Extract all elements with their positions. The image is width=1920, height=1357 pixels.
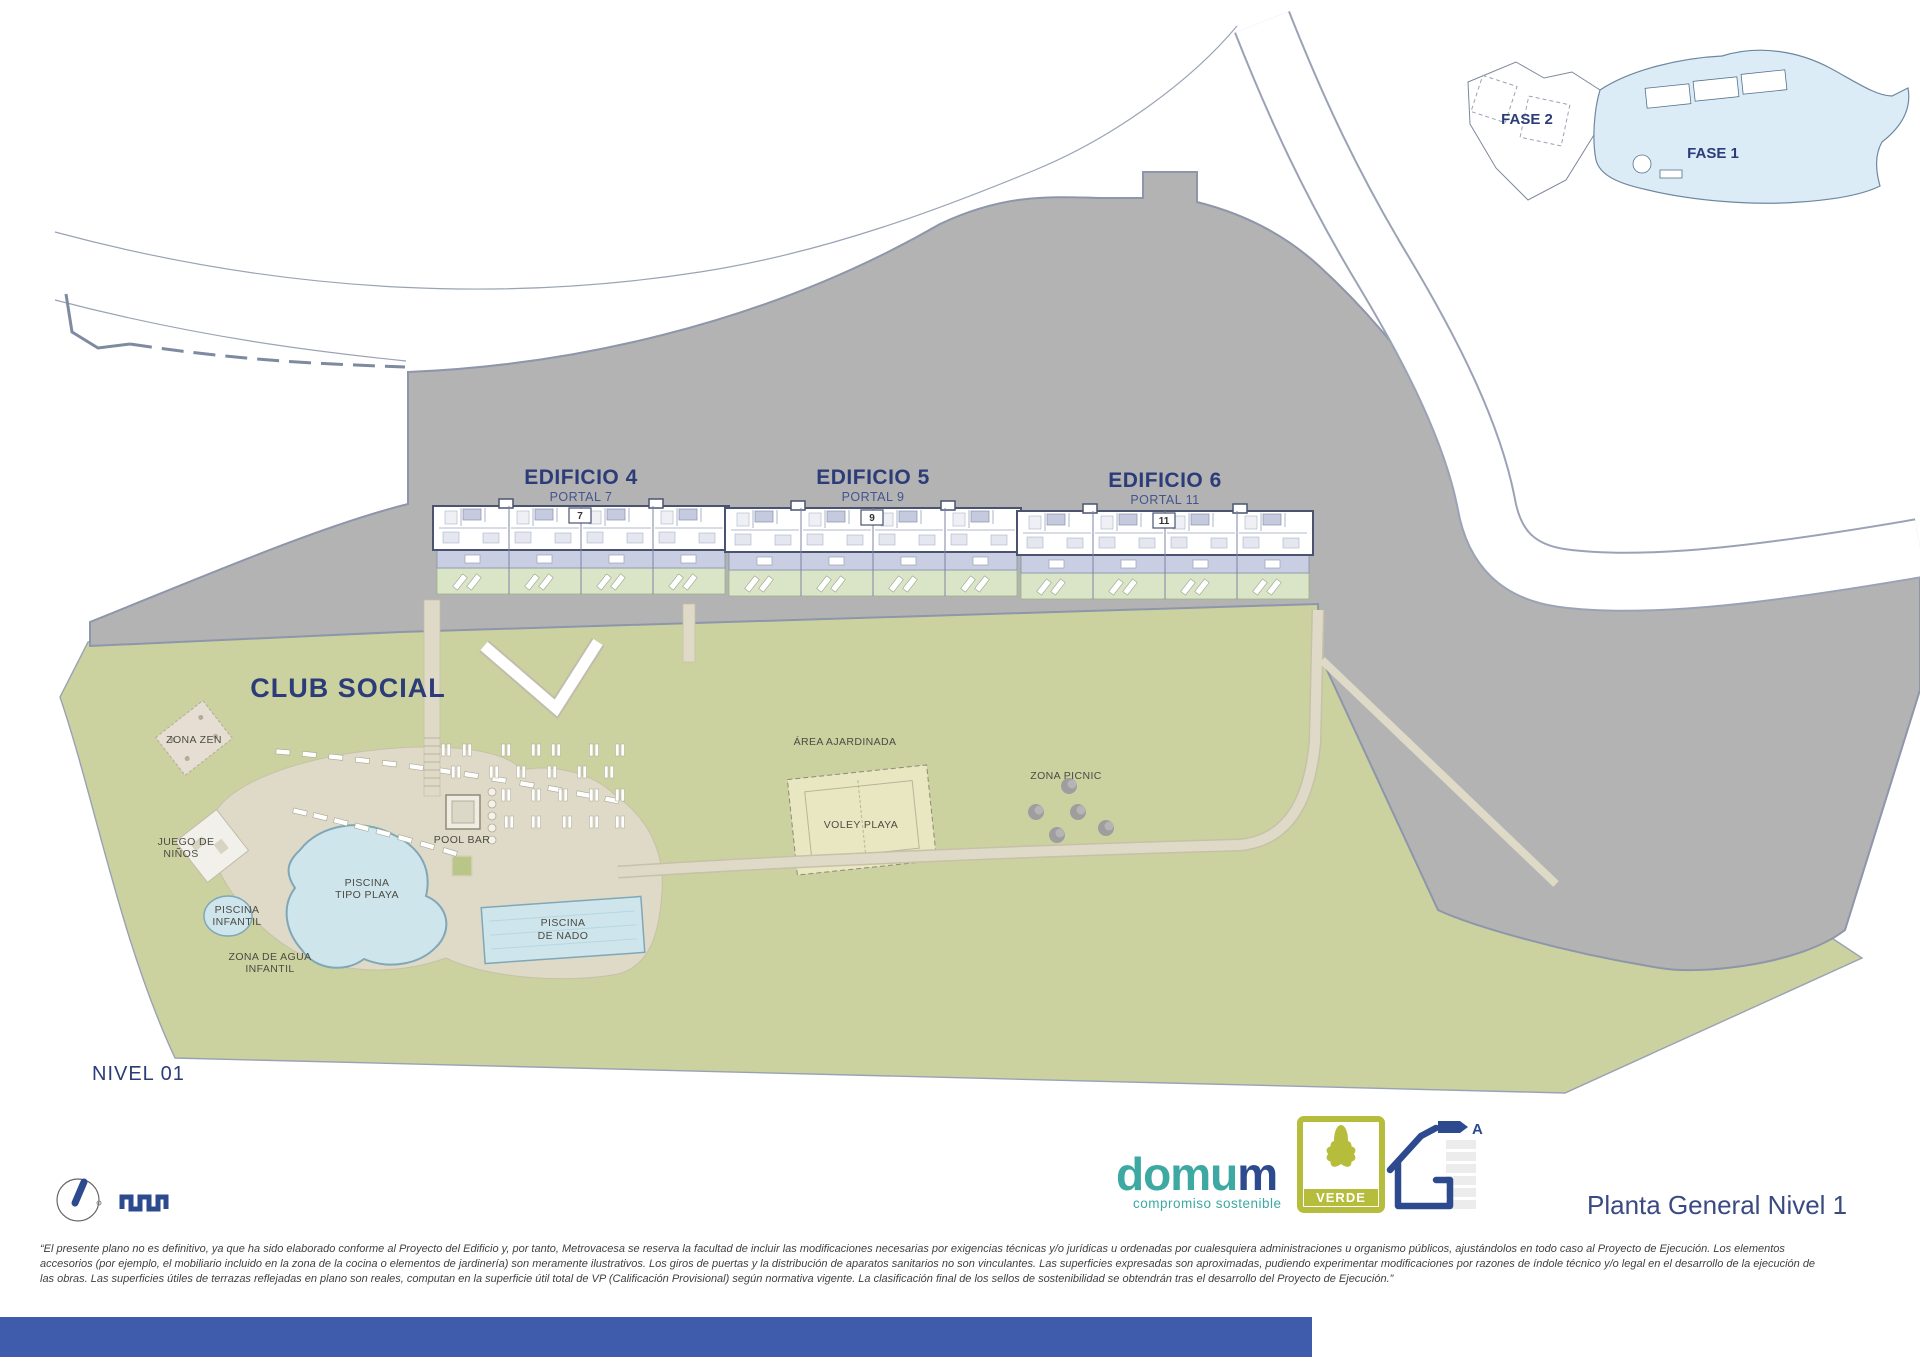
furniture: [1139, 538, 1155, 548]
sheet-title: Planta General Nivel 1: [1587, 1190, 1847, 1220]
furniture: [443, 532, 459, 543]
sun-lounger: [507, 744, 511, 756]
fase1-label: FASE 1: [1687, 145, 1739, 162]
boundary-jog-line: [66, 294, 130, 348]
round-table: [488, 800, 496, 808]
bathroom-cell: [1263, 514, 1281, 525]
furniture: [919, 535, 935, 545]
sun-lounger: [559, 789, 563, 801]
rooftop-vent: [941, 501, 955, 510]
furniture: [1171, 537, 1187, 548]
furniture: [953, 513, 965, 526]
terrace-table: [757, 557, 772, 565]
furniture: [775, 535, 791, 545]
piscina-nado-label-2: DE NADO: [538, 930, 589, 942]
domum-logo: domum compromiso sostenible: [1116, 1148, 1282, 1211]
sun-lounger: [495, 766, 499, 778]
energy-rating-letter: A: [1472, 1121, 1483, 1138]
secondary-path: [683, 604, 695, 662]
zona-agua-label-1: ZONA DE AGUA: [229, 951, 312, 963]
building-4-portal: PORTAL 7: [550, 490, 613, 504]
boundary-dashed-line: [130, 344, 405, 367]
sun-lounger: [578, 766, 582, 778]
sun-lounger: [502, 789, 506, 801]
zona-zen-label: ZONA ZEN: [166, 734, 222, 746]
sun-lounger: [507, 789, 511, 801]
furniture: [555, 533, 571, 543]
area-ajardinada-label: ÁREA AJARDINADA: [794, 735, 897, 748]
bathroom-cell: [463, 509, 481, 520]
building-5-name: EDIFICIO 5: [816, 466, 930, 489]
piscina-playa-label-2: TIPO PLAYA: [335, 889, 399, 901]
furniture: [1067, 538, 1083, 548]
sun-lounger: [621, 789, 625, 801]
furniture: [879, 534, 895, 545]
rooftop-vent: [1083, 504, 1097, 513]
sun-lounger: [517, 766, 521, 778]
sun-lounger: [548, 766, 552, 778]
terrace-table: [465, 555, 480, 563]
sun-lounger: [532, 789, 536, 801]
terrace-table: [1265, 560, 1280, 568]
sun-lounger: [490, 766, 494, 778]
piscina-playa-label-1: PISCINA: [345, 877, 390, 889]
furniture: [991, 535, 1007, 545]
terrace-table: [1193, 560, 1208, 568]
sun-lounger: [595, 789, 599, 801]
brand-tagline: compromiso sostenible: [1133, 1196, 1282, 1211]
round-table: [488, 812, 496, 820]
sun-lounger: [564, 789, 568, 801]
sun-lounger: [505, 816, 509, 828]
bathroom-cell: [607, 509, 625, 520]
rooftop-vent: [1233, 504, 1247, 513]
sun-lounger: [532, 816, 536, 828]
terrace-table: [829, 557, 844, 565]
rating-arrow: [1438, 1121, 1468, 1133]
sun-lounger: [452, 766, 456, 778]
sun-lounger: [522, 766, 526, 778]
piscina-infantil-label-1: PISCINA: [215, 904, 260, 916]
sun-lounger: [442, 744, 446, 756]
phases-inset-map: FASE 2 FASE 1: [1468, 50, 1909, 203]
furniture: [807, 534, 823, 545]
furniture: [809, 513, 821, 526]
furniture: [951, 534, 967, 545]
planter: [452, 856, 472, 876]
sun-lounger: [590, 744, 594, 756]
sun-lounger: [590, 816, 594, 828]
piscina-infantil-label-2: INFANTIL: [212, 916, 261, 928]
fase2-area: [1468, 62, 1602, 200]
furniture: [483, 533, 499, 543]
sun-lounger: [532, 744, 536, 756]
verde-badge: VERDE: [1300, 1119, 1382, 1210]
road-edge-line-inner: [55, 300, 406, 361]
sun-lounger: [595, 816, 599, 828]
disclaimer-line-1: “El presente plano no es definitivo, ya …: [40, 1243, 1785, 1255]
furniture: [737, 513, 749, 526]
sun-lounger: [302, 751, 316, 757]
furniture: [1245, 516, 1257, 529]
rooftop-vent: [791, 501, 805, 510]
furniture: [661, 511, 673, 524]
furniture: [1027, 537, 1043, 548]
building-5-portal: PORTAL 9: [842, 490, 905, 504]
level-label: NIVEL 01: [92, 1063, 185, 1085]
furniture: [445, 511, 457, 524]
sun-lounger: [463, 744, 467, 756]
sun-lounger: [447, 744, 451, 756]
bathroom-cell: [755, 511, 773, 522]
furniture: [1243, 537, 1259, 548]
sun-lounger: [276, 749, 290, 755]
picnic-tree-highlight: [1105, 822, 1114, 831]
brand-wordmark: domum: [1116, 1148, 1277, 1200]
portal-number: 9: [869, 513, 875, 524]
furniture: [1029, 516, 1041, 529]
bathroom-cell: [1119, 514, 1137, 525]
zona-picnic-label: ZONA PICNIC: [1030, 770, 1102, 782]
sun-lounger: [553, 766, 557, 778]
sun-lounger: [621, 816, 625, 828]
sun-lounger: [563, 816, 567, 828]
sun-lounger: [557, 744, 561, 756]
north-compass-icon: [57, 1179, 101, 1221]
sun-lounger: [510, 816, 514, 828]
bathroom-cell: [1047, 514, 1065, 525]
terrace-table: [973, 557, 988, 565]
building-block: 7: [433, 499, 729, 594]
sun-lounger: [616, 789, 620, 801]
furniture: [659, 532, 675, 543]
voley-playa-label: VOLEY PLAYA: [824, 819, 898, 831]
pool-bar-label: POOL BAR: [434, 834, 491, 846]
juego-ninos-label-2: NIÑOS: [163, 847, 198, 860]
furniture: [1283, 538, 1299, 548]
fase2-label: FASE 2: [1501, 111, 1553, 128]
sun-lounger: [457, 766, 461, 778]
sun-lounger: [537, 789, 541, 801]
sun-lounger: [616, 816, 620, 828]
bathroom-cell: [971, 511, 989, 522]
club-social-label: CLUB SOCIAL: [250, 673, 446, 703]
sun-lounger: [537, 816, 541, 828]
bathroom-cell: [535, 509, 553, 520]
buildings-layer: 7911: [433, 499, 1313, 599]
furniture: [587, 532, 603, 543]
building-block: 11: [1017, 504, 1313, 599]
piscina-nado-label-1: PISCINA: [541, 917, 586, 929]
picnic-tree-highlight: [1056, 829, 1065, 838]
bathroom-cell: [827, 511, 845, 522]
sun-lounger: [616, 744, 620, 756]
sun-lounger: [537, 744, 541, 756]
furniture: [699, 533, 715, 543]
bathroom-cell: [1191, 514, 1209, 525]
building-4-name: EDIFICIO 4: [524, 466, 638, 489]
rooftop-vent: [499, 499, 513, 508]
round-table: [488, 788, 496, 796]
sun-lounger: [552, 744, 556, 756]
terrace-table: [609, 555, 624, 563]
terrace-table: [1121, 560, 1136, 568]
sun-lounger: [621, 744, 625, 756]
footer-bar: [0, 1317, 1312, 1357]
house-walls: [1398, 1162, 1450, 1206]
sun-lounger: [595, 744, 599, 756]
fase1-pool: [1633, 155, 1651, 173]
site-plan-sheet: 7911 EDIFICIO 4 PORTAL 7 EDIFICIO 5 PORT…: [0, 0, 1920, 1357]
building-6-name: EDIFICIO 6: [1108, 469, 1222, 492]
disclaimer-line-3: las obras. Las superficies útiles de ter…: [40, 1273, 1395, 1285]
furniture: [1101, 516, 1113, 529]
sun-lounger: [583, 766, 587, 778]
furniture: [515, 532, 531, 543]
fase1-lap-pool: [1660, 170, 1682, 178]
verde-label: VERDE: [1316, 1190, 1366, 1205]
brand-last-letter: m: [1237, 1148, 1277, 1200]
brand-main: domu: [1116, 1148, 1237, 1200]
scale-bar-icon: [122, 1197, 166, 1209]
portal-number: 11: [1159, 516, 1170, 527]
picnic-tree-highlight: [1035, 806, 1044, 815]
picnic-tree-highlight: [1077, 806, 1086, 815]
pool-bar-counter: [452, 801, 474, 823]
sun-lounger: [502, 744, 506, 756]
juego-ninos-label-1: JUEGO DE: [158, 836, 215, 848]
sun-lounger: [568, 816, 572, 828]
terrace-table: [1049, 560, 1064, 568]
terrace-table: [537, 555, 552, 563]
furniture: [627, 533, 643, 543]
site-plan-canvas: 7911 EDIFICIO 4 PORTAL 7 EDIFICIO 5 PORT…: [0, 0, 1920, 1357]
furniture: [517, 511, 529, 524]
sun-lounger: [610, 766, 614, 778]
disclaimer-block: “El presente plano no es definitivo, ya …: [40, 1243, 1815, 1285]
zona-agua-label-2: INFANTIL: [245, 963, 294, 975]
disclaimer-line-2: accesorios (por ejemplo, el mobiliario i…: [40, 1258, 1815, 1270]
sun-lounger: [590, 789, 594, 801]
bathroom-cell: [679, 509, 697, 520]
building-block: 9: [725, 501, 1021, 596]
sun-lounger: [605, 766, 609, 778]
rooftop-vent: [649, 499, 663, 508]
terrace-table: [901, 557, 916, 565]
furniture: [847, 535, 863, 545]
portal-number: 7: [577, 511, 583, 522]
round-table: [488, 824, 496, 832]
furniture: [735, 534, 751, 545]
sun-lounger: [468, 744, 472, 756]
energy-house-icon: A: [1390, 1121, 1483, 1209]
furniture: [1099, 537, 1115, 548]
terrace-table: [681, 555, 696, 563]
furniture: [1211, 538, 1227, 548]
building-6-portal: PORTAL 11: [1130, 493, 1199, 507]
bathroom-cell: [899, 511, 917, 522]
